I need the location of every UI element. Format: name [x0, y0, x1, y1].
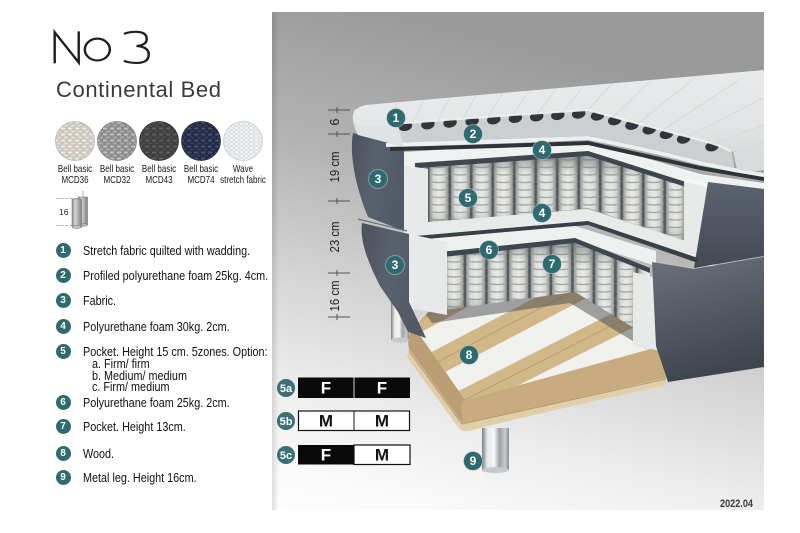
- svg-text:6: 6: [486, 243, 493, 257]
- svg-text:Bell basic: Bell basic: [58, 163, 93, 174]
- svg-text:1: 1: [393, 111, 400, 125]
- svg-text:6: 6: [328, 118, 342, 125]
- svg-text:2: 2: [470, 127, 477, 141]
- svg-text:Bell basic: Bell basic: [184, 163, 219, 174]
- svg-text:F: F: [321, 446, 331, 465]
- svg-text:F: F: [321, 379, 331, 398]
- svg-text:2022.04: 2022.04: [720, 498, 754, 510]
- svg-text:9: 9: [470, 454, 477, 468]
- svg-text:MCD32: MCD32: [103, 174, 130, 185]
- svg-text:F: F: [377, 379, 387, 398]
- svg-text:Bell basic: Bell basic: [142, 163, 177, 174]
- svg-text:MCD43: MCD43: [145, 174, 172, 185]
- svg-text:Bell basic: Bell basic: [100, 163, 135, 174]
- svg-text:5c: 5c: [280, 450, 292, 462]
- svg-text:16: 16: [59, 207, 69, 217]
- svg-text:3: 3: [392, 258, 399, 272]
- svg-text:MCD74: MCD74: [187, 174, 214, 185]
- svg-text:MCD36: MCD36: [61, 174, 88, 185]
- svg-text:16 cm: 16 cm: [328, 281, 342, 312]
- svg-text:Wave: Wave: [233, 163, 253, 174]
- svg-text:M: M: [375, 412, 389, 431]
- svg-text:5a: 5a: [280, 383, 293, 395]
- svg-text:4: 4: [539, 206, 546, 220]
- svg-text:5: 5: [465, 191, 472, 205]
- svg-text:stretch fabric: stretch fabric: [220, 174, 266, 185]
- svg-text:4: 4: [539, 143, 546, 157]
- svg-text:23 cm: 23 cm: [328, 222, 342, 253]
- svg-text:7: 7: [549, 257, 556, 271]
- svg-text:8: 8: [466, 348, 473, 362]
- svg-text:M: M: [375, 446, 389, 465]
- svg-text:M: M: [319, 412, 333, 431]
- svg-text:3: 3: [375, 172, 382, 186]
- svg-text:19 cm: 19 cm: [328, 152, 342, 183]
- svg-text:5b: 5b: [280, 416, 293, 428]
